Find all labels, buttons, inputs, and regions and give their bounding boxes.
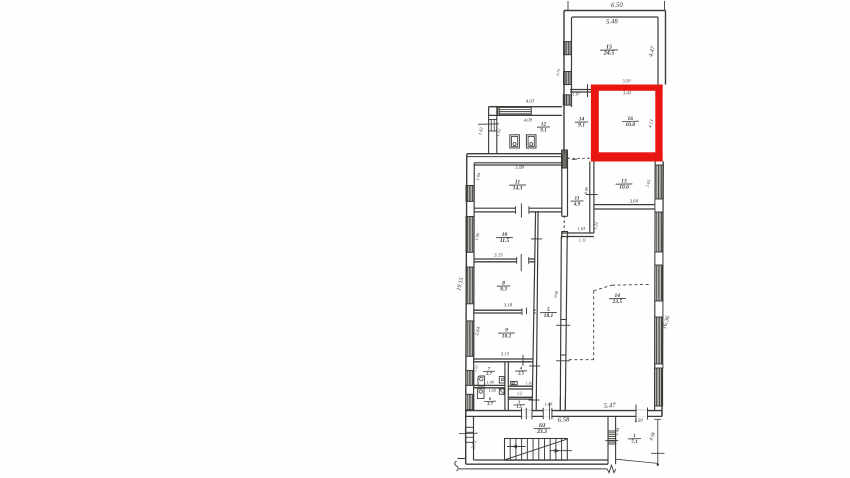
svg-text:2.5: 2.5 bbox=[517, 370, 524, 375]
svg-text:1.2: 1.2 bbox=[517, 391, 522, 396]
svg-text:4.63: 4.63 bbox=[526, 98, 535, 104]
svg-text:14.3: 14.3 bbox=[513, 186, 523, 192]
svg-text:5.99: 5.99 bbox=[515, 165, 524, 171]
svg-text:4.98: 4.98 bbox=[648, 431, 657, 442]
svg-text:7.1: 7.1 bbox=[631, 439, 638, 445]
svg-text:3.50: 3.50 bbox=[622, 78, 631, 83]
svg-text:0.98: 0.98 bbox=[553, 290, 559, 298]
svg-text:1.07: 1.07 bbox=[572, 91, 581, 96]
svg-text:4.9: 4.9 bbox=[573, 202, 581, 208]
svg-text:1.50: 1.50 bbox=[634, 418, 643, 424]
svg-text:0.76: 0.76 bbox=[556, 68, 562, 76]
svg-text:18.1: 18.1 bbox=[544, 313, 554, 319]
svg-text:3.7: 3.7 bbox=[486, 401, 493, 406]
svg-text:1.21: 1.21 bbox=[592, 221, 599, 230]
svg-text:23.3: 23.3 bbox=[536, 429, 547, 435]
svg-text:1.82: 1.82 bbox=[477, 126, 484, 135]
svg-text:3.43: 3.43 bbox=[623, 90, 632, 95]
svg-text:1.68: 1.68 bbox=[545, 401, 554, 406]
svg-text:2.64: 2.64 bbox=[474, 326, 482, 336]
svg-text:1.52: 1.52 bbox=[495, 127, 502, 136]
svg-text:1.44: 1.44 bbox=[614, 427, 621, 436]
svg-text:24.5: 24.5 bbox=[603, 51, 615, 57]
svg-text:10.6: 10.6 bbox=[619, 185, 629, 191]
svg-text:9.3: 9.3 bbox=[500, 287, 507, 293]
svg-text:2.7: 2.7 bbox=[485, 371, 492, 376]
svg-text:2.72: 2.72 bbox=[470, 439, 478, 449]
svg-text:10.8: 10.8 bbox=[625, 122, 635, 128]
svg-text:11.5: 11.5 bbox=[500, 238, 510, 244]
svg-text:5.47: 5.47 bbox=[604, 402, 617, 409]
svg-text:5.48: 5.48 bbox=[606, 18, 619, 26]
svg-text:1.40: 1.40 bbox=[487, 379, 495, 384]
svg-text:1.11: 1.11 bbox=[579, 237, 587, 242]
svg-text:1.63: 1.63 bbox=[577, 226, 586, 231]
svg-text:1.61: 1.61 bbox=[645, 179, 652, 188]
svg-text:19.15: 19.15 bbox=[456, 277, 465, 292]
svg-text:1.96: 1.96 bbox=[474, 232, 481, 241]
svg-text:1.04: 1.04 bbox=[475, 172, 482, 181]
svg-text:6.58: 6.58 bbox=[557, 416, 570, 424]
svg-text:4.13: 4.13 bbox=[647, 118, 655, 128]
svg-text:3.64: 3.64 bbox=[630, 198, 639, 204]
svg-text:0.98: 0.98 bbox=[583, 187, 589, 195]
svg-text:6.50: 6.50 bbox=[611, 2, 624, 9]
svg-text:3.15: 3.15 bbox=[494, 252, 503, 258]
svg-text:3.15: 3.15 bbox=[501, 351, 510, 357]
svg-text:9.1: 9.1 bbox=[578, 123, 585, 129]
svg-text:1.52: 1.52 bbox=[472, 365, 479, 373]
svg-text:23.5: 23.5 bbox=[611, 299, 622, 305]
svg-text:10.1: 10.1 bbox=[502, 334, 512, 340]
svg-text:1.62: 1.62 bbox=[526, 380, 533, 385]
svg-text:4.09: 4.09 bbox=[524, 117, 533, 123]
svg-text:1.00: 1.00 bbox=[488, 388, 496, 393]
svg-text:4.47: 4.47 bbox=[648, 45, 657, 58]
svg-text:9.1: 9.1 bbox=[540, 128, 547, 134]
svg-text:3.18: 3.18 bbox=[504, 302, 513, 308]
